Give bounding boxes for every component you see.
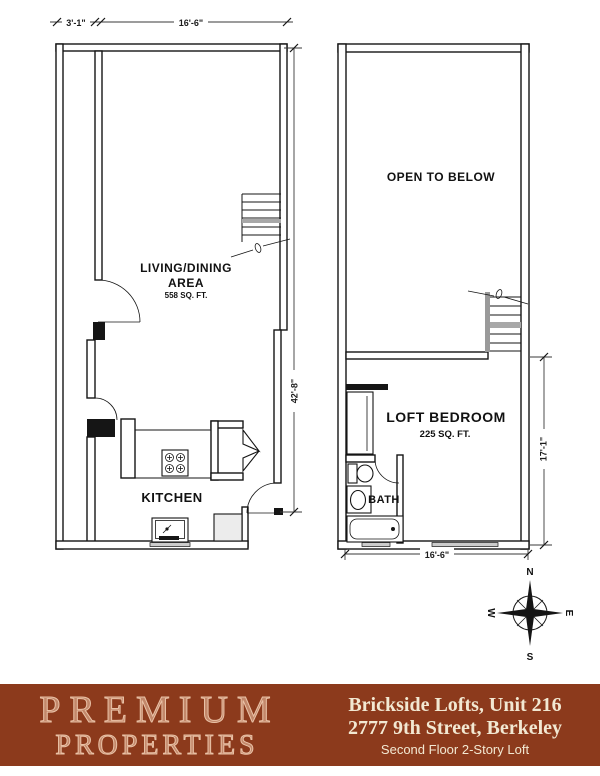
dim-right-first: 42'-8": [290, 379, 300, 403]
dim-top-left: 3'-1": [66, 18, 85, 28]
bedroom-closet: [347, 392, 373, 454]
bathtub: [347, 516, 403, 542]
second-floor-plan: OPEN TO BELOW LOFT BEDROOM 225 SQ. FT. B…: [338, 44, 552, 560]
bath-door: [375, 459, 399, 483]
loft-bedroom-label: LOFT BEDROOM: [386, 409, 506, 425]
compass-rose: N S W E: [485, 567, 574, 663]
kitchen-door: [95, 398, 117, 420]
listing-info: Brickside Lofts, Unit 216 2777 9th Stree…: [310, 684, 600, 766]
compass-west: W: [485, 608, 496, 618]
closet-door-leaf: [243, 451, 259, 471]
pantry-closet: [211, 421, 259, 480]
floorplan-drawing: LIVING/DINING AREA 558 SQ. FT. KITCHEN 3…: [0, 0, 600, 684]
dim-bottom-second: 16'-6": [425, 550, 449, 560]
bedroom-sqft-label: 225 SQ. FT.: [420, 429, 471, 440]
floorplan-page: LIVING/DINING AREA 558 SQ. FT. KITCHEN 3…: [0, 0, 600, 776]
compass-south: S: [527, 652, 534, 663]
living-dining-label-2: AREA: [168, 276, 204, 290]
kitchen-sink: [152, 518, 188, 542]
toilet: [348, 464, 373, 483]
open-to-below-label: OPEN TO BELOW: [387, 170, 495, 184]
listing-floor-note: Second Floor 2-Story Loft: [381, 742, 529, 757]
compass-north: N: [526, 567, 533, 578]
kitchen-fixtures: [121, 419, 259, 542]
window-symbol: [150, 543, 190, 547]
closet-door-leaf: [243, 430, 259, 451]
living-dining-label: LIVING/DINING: [140, 261, 232, 275]
brand-name-line2: PROPERTIES: [55, 732, 258, 760]
first-floor-plan: LIVING/DINING AREA 558 SQ. FT. KITCHEN 3…: [50, 16, 302, 549]
stove: [162, 450, 188, 476]
kitchen-label: KITCHEN: [141, 490, 202, 505]
dim-top-main: 16'-6": [179, 18, 203, 28]
living-sqft-label: 558 SQ. FT.: [165, 291, 208, 300]
brand-logo: PREMIUM PROPERTIES: [0, 684, 310, 766]
window-symbol: [362, 543, 390, 547]
entry-door: [247, 483, 277, 513]
listing-address: 2777 9th Street, Berkeley: [348, 717, 562, 740]
compass-east: E: [563, 610, 574, 617]
footer-bar: PREMIUM PROPERTIES Brickside Lofts, Unit…: [0, 684, 600, 766]
listing-title: Brickside Lofts, Unit 216: [348, 694, 561, 717]
appliance: [214, 514, 242, 541]
compass-needle-ew: [497, 609, 563, 618]
window-symbol: [432, 543, 498, 547]
bath-label: BATH: [368, 494, 400, 506]
living-room-door: [98, 280, 140, 322]
brand-name-line1: PREMIUM: [39, 691, 279, 729]
stair-break-line: [468, 289, 528, 304]
dim-right-second: 17'-1": [539, 437, 549, 461]
second-floor-stairs: [468, 289, 528, 352]
